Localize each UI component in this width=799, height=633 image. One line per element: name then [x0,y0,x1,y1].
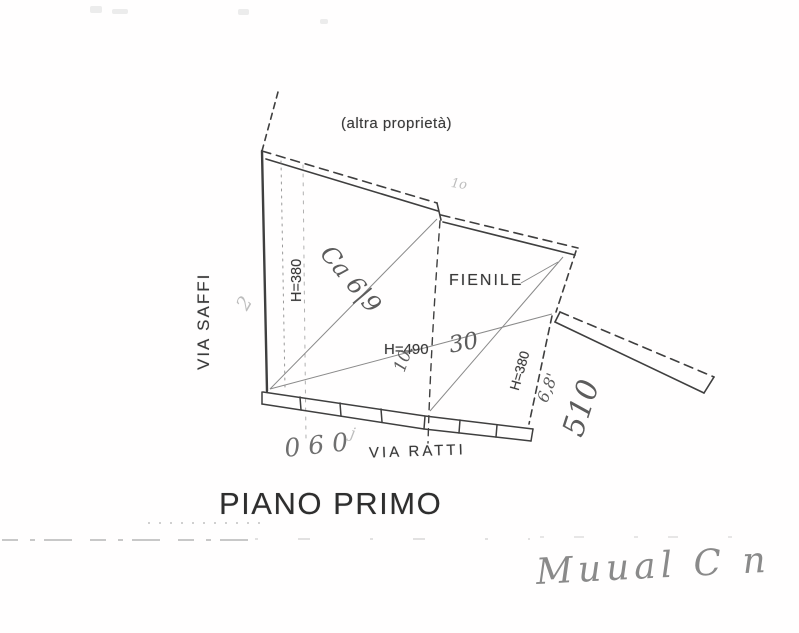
plan-drawing [0,0,799,633]
street-label-via-ratti: VIA RATTI [369,441,466,461]
street-label-via-saffi: VIA SAFFI [194,228,214,370]
scan-artifacts [2,523,740,540]
scan-smudge [238,9,249,15]
scan-smudge [90,6,102,13]
handwritten-thirty-note: 30 [447,328,480,359]
scan-smudge [112,9,128,14]
scan-smudge [320,19,328,24]
height-label-left: H=380 [289,240,305,302]
scanned-floor-plan-page: (altra proprietà) VIA SAFFI H=380 FIENIL… [0,0,799,633]
room-label-fienile: FIENILE [449,272,523,290]
plan-title: PIANO PRIMO [219,486,442,522]
handwritten-faint-note: 1o [450,176,468,193]
other-property-label: (altra proprietà) [341,115,452,132]
building-outline [262,92,578,443]
